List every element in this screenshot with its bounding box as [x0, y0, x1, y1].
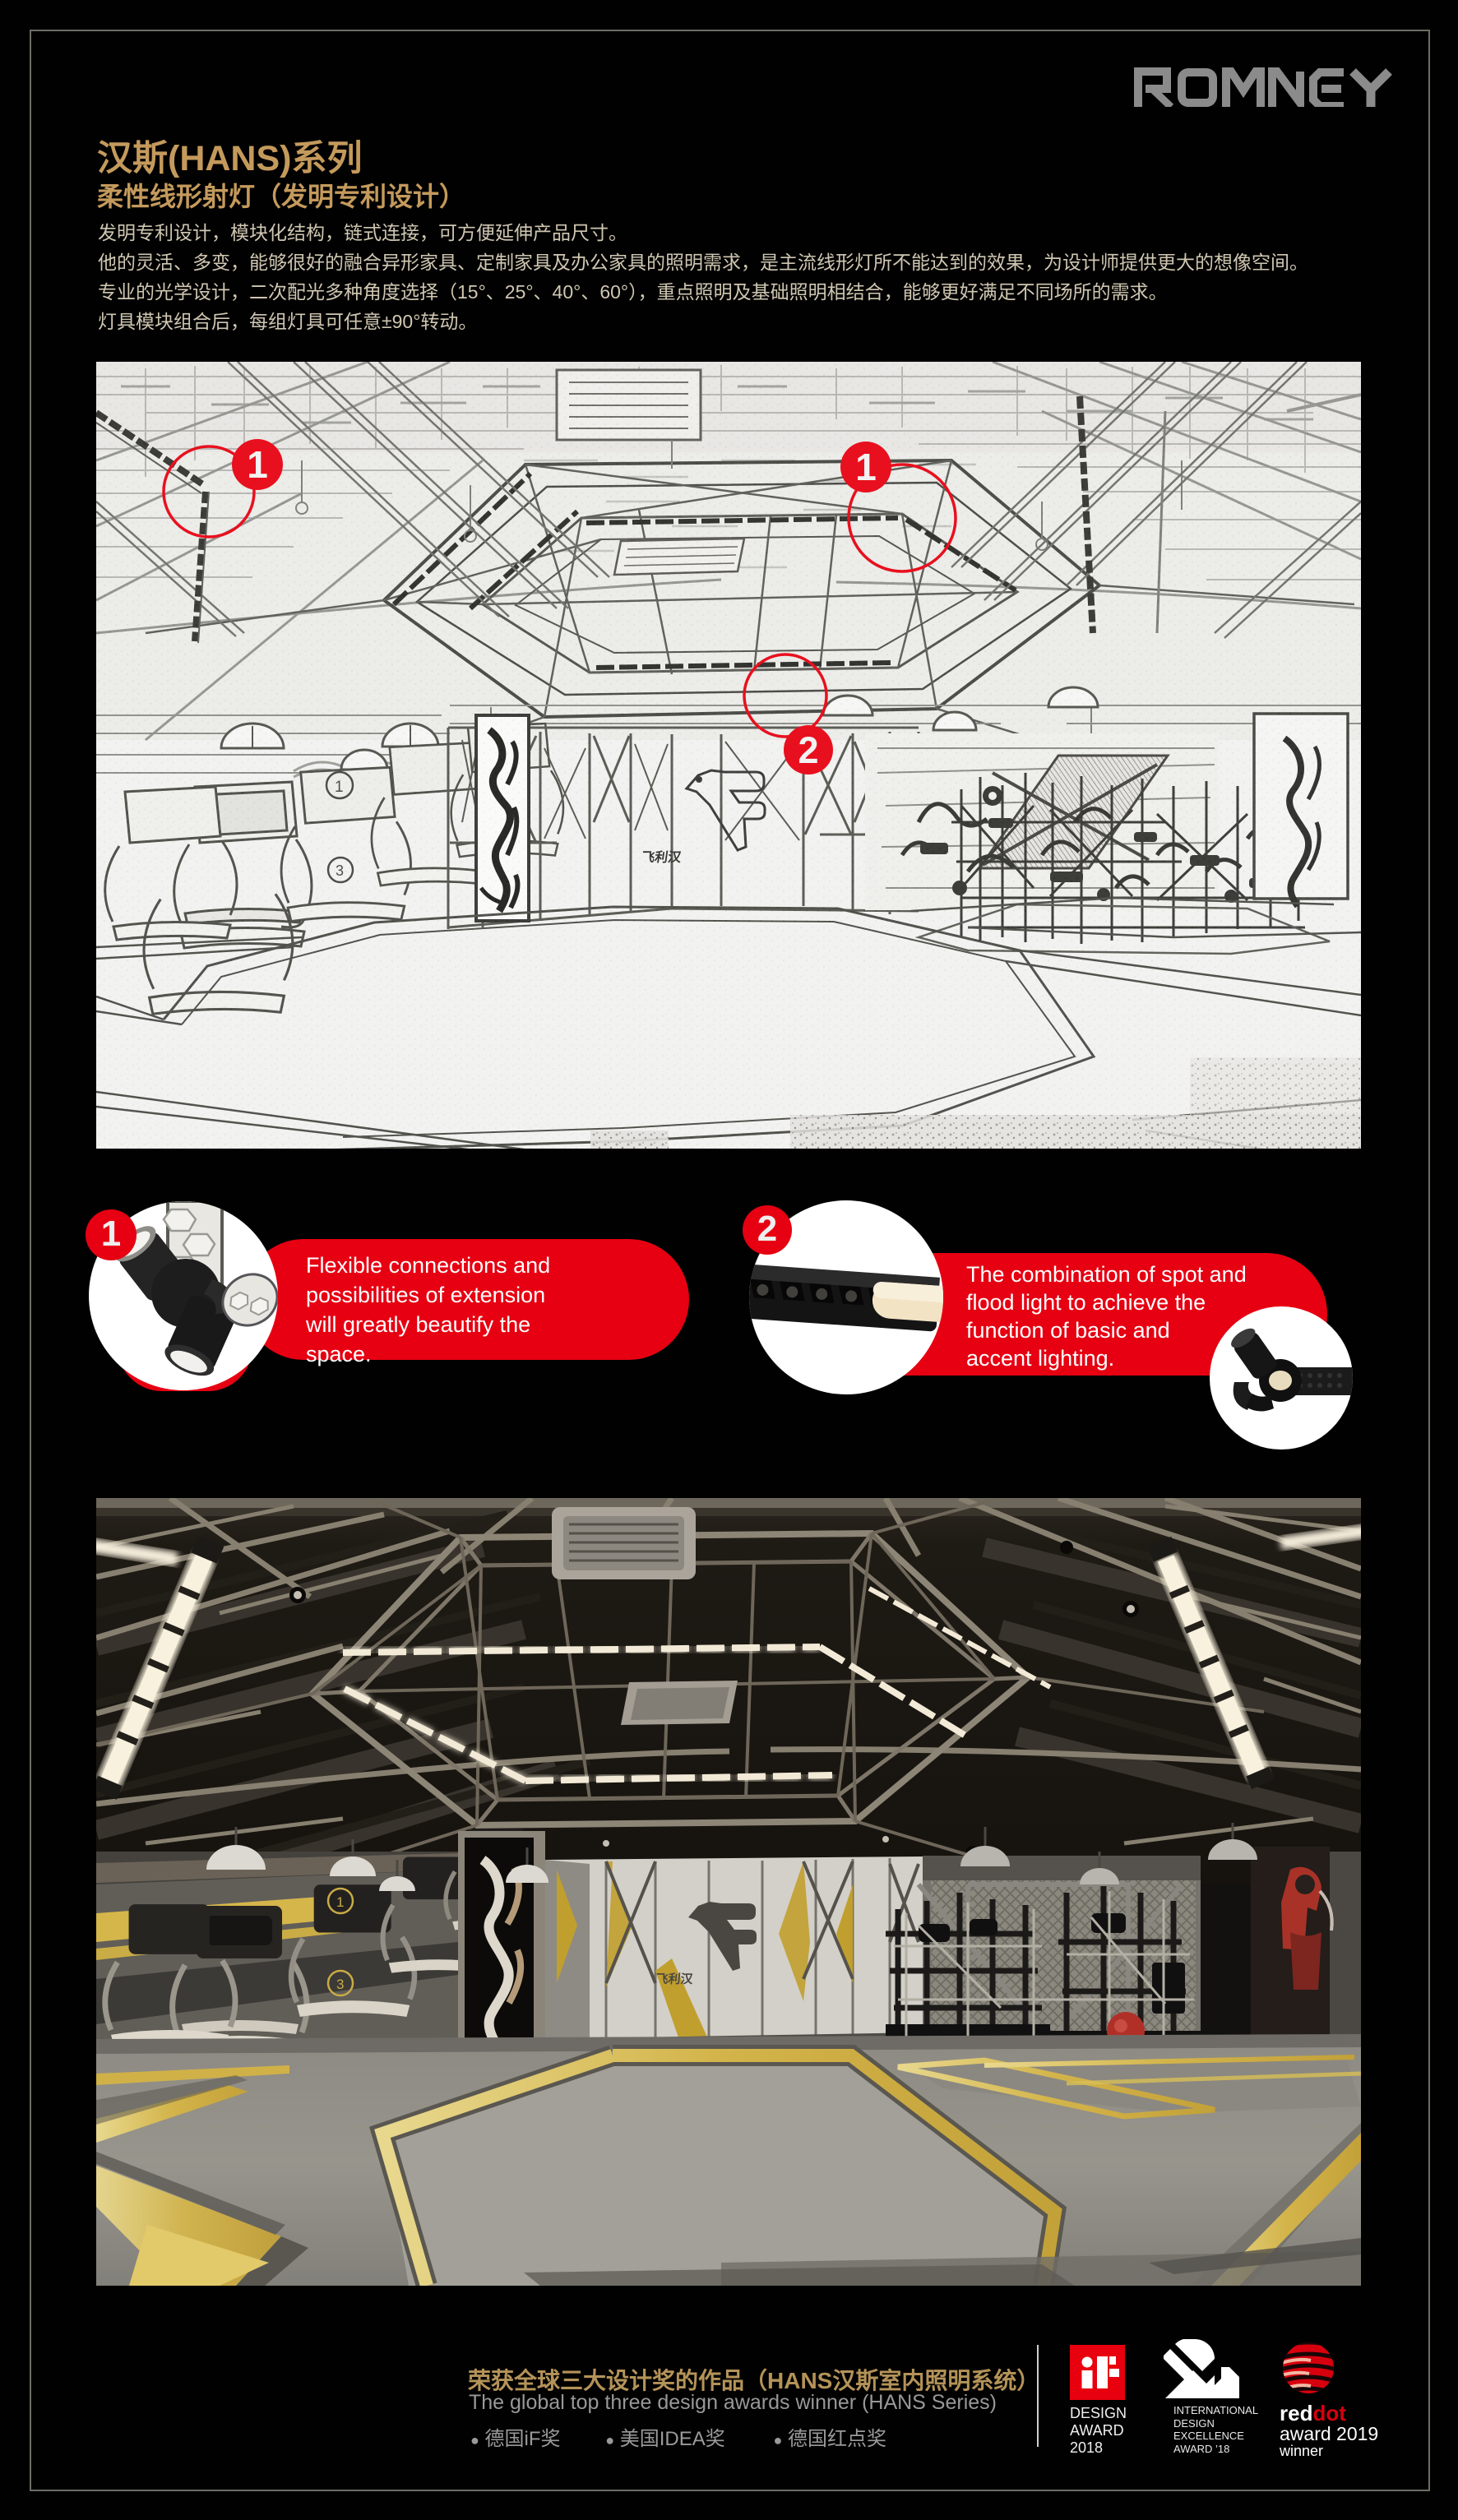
svg-text:1: 1 [336, 1894, 344, 1910]
svg-text:2: 2 [798, 729, 818, 771]
svg-text:1: 1 [855, 446, 877, 488]
svg-text:飞利汉: 飞利汉 [655, 1972, 695, 1986]
svg-text:1: 1 [247, 443, 268, 486]
svg-text:3: 3 [336, 1977, 344, 1992]
